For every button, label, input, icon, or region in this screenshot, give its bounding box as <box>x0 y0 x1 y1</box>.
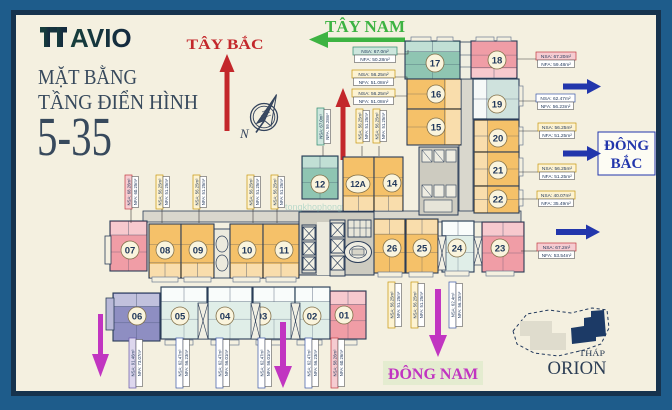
svg-text:NFA: 56.23m²: NFA: 56.23m² <box>184 349 189 376</box>
svg-text:NSA: 56.25m²: NSA: 56.25m² <box>357 112 362 140</box>
svg-text:NFA: 60.26m²: NFA: 60.26m² <box>339 349 344 376</box>
svg-text:12A: 12A <box>350 179 366 189</box>
svg-text:NSA: 67.0m²: NSA: 67.0m² <box>318 114 323 139</box>
svg-text:NFA: 51.25m²: NFA: 51.25m² <box>201 178 206 205</box>
svg-text:NSA: 56.25m²: NSA: 56.25m² <box>374 112 379 140</box>
svg-text:NFA: 56.23m²: NFA: 56.23m² <box>313 349 318 376</box>
svg-text:NFA: 51.25m²: NFA: 51.25m² <box>419 291 424 318</box>
svg-text:NFA: 51.25m²: NFA: 51.25m² <box>364 112 369 139</box>
svg-text:25: 25 <box>417 243 428 254</box>
svg-text:22: 22 <box>493 194 504 205</box>
svg-text:24: 24 <box>452 243 463 254</box>
svg-text:NSA: 91.46m²: NSA: 91.46m² <box>130 349 135 377</box>
svg-text:NSA: 67.2m²: NSA: 67.2m² <box>543 245 571 251</box>
svg-text:NSA: 56.25m²: NSA: 56.25m² <box>389 291 394 319</box>
svg-text:BẮC: BẮC <box>611 155 643 172</box>
svg-text:NFA: 51.25m²: NFA: 51.25m² <box>279 178 284 205</box>
svg-text:16: 16 <box>431 89 442 100</box>
svg-text:ORION: ORION <box>548 358 607 379</box>
svg-text:NSA: 56.25m²: NSA: 56.25m² <box>542 166 573 172</box>
svg-text:NFA: 51.25m²: NFA: 51.25m² <box>381 112 386 139</box>
svg-text:NFA: 51.08m²: NFA: 51.08m² <box>359 80 389 86</box>
svg-text:07: 07 <box>125 245 136 256</box>
svg-text:06: 06 <box>132 311 143 322</box>
svg-text:12: 12 <box>315 179 326 190</box>
svg-text:26: 26 <box>387 243 398 254</box>
svg-text:NSA: 67.20m²: NSA: 67.20m² <box>541 54 572 60</box>
svg-text:NSA: 62.47m²: NSA: 62.47m² <box>306 349 311 377</box>
svg-text:NSA: 56.25m²: NSA: 56.25m² <box>194 178 199 206</box>
svg-text:NSA: 62.4m²: NSA: 62.4m² <box>450 292 455 317</box>
svg-text:TÂY BẮC: TÂY BẮC <box>187 36 264 53</box>
svg-text:08: 08 <box>160 245 171 256</box>
svg-text:NSA: 62.47m²: NSA: 62.47m² <box>540 96 571 102</box>
svg-text:20: 20 <box>493 133 504 144</box>
svg-text:21: 21 <box>493 165 504 176</box>
svg-text:NFA: 73.07m²: NFA: 73.07m² <box>137 349 142 376</box>
svg-text:NFA: 50.28m²: NFA: 50.28m² <box>360 57 390 63</box>
svg-text:NFA: 51.25m²: NFA: 51.25m² <box>542 133 572 139</box>
svg-text:NFA: 56.01m²: NFA: 56.01m² <box>266 349 271 376</box>
svg-text:NSA: 56.25m²: NSA: 56.25m² <box>358 91 389 97</box>
svg-text:NFA: 35.49m²: NFA: 35.49m² <box>541 201 571 207</box>
svg-text:NSA: 62.47m²: NSA: 62.47m² <box>259 349 264 377</box>
svg-text:NFA: 56.01m²: NFA: 56.01m² <box>224 349 229 376</box>
svg-text:10: 10 <box>242 245 253 256</box>
svg-text:AVIO: AVIO <box>70 23 132 53</box>
svg-text:NSA: 56.25m²: NSA: 56.25m² <box>358 72 389 78</box>
svg-text:NSA: 56.25m²: NSA: 56.25m² <box>412 291 417 319</box>
svg-text:NFA: 56.23m²: NFA: 56.23m² <box>541 104 571 110</box>
svg-text:NFA: 60.25m²: NFA: 60.25m² <box>133 178 138 205</box>
svg-text:N: N <box>239 126 250 141</box>
svg-text:18: 18 <box>492 55 503 66</box>
svg-text:02: 02 <box>307 311 318 322</box>
svg-text:ĐÔNG: ĐÔNG <box>604 137 649 154</box>
svg-text:NSA: 68.26m²: NSA: 68.26m² <box>126 178 131 206</box>
svg-text:NFA: 51.25m²: NFA: 51.25m² <box>255 178 260 205</box>
svg-text:01: 01 <box>339 310 350 321</box>
svg-text:05: 05 <box>175 311 186 322</box>
svg-text:NSA: 40.07m²: NSA: 40.07m² <box>541 193 572 199</box>
svg-text:NFA: 51.25m²: NFA: 51.25m² <box>164 178 169 205</box>
svg-text:23: 23 <box>495 243 506 254</box>
svg-text:ĐÔNG NAM: ĐÔNG NAM <box>388 364 478 383</box>
svg-text:04: 04 <box>220 311 231 322</box>
svg-text:NSA: 62.47m²: NSA: 62.47m² <box>217 349 222 377</box>
svg-text:NSA: 56.25m²: NSA: 56.25m² <box>272 178 277 206</box>
svg-text:NSA: 62.47m²: NSA: 62.47m² <box>177 349 182 377</box>
svg-text:NFA: 51.25m²: NFA: 51.25m² <box>396 291 401 318</box>
svg-text:15: 15 <box>431 122 442 133</box>
svg-text:NFA: 51.08m²: NFA: 51.08m² <box>359 99 389 105</box>
svg-text:MẶT BẰNG: MẶT BẰNG <box>38 65 137 89</box>
svg-text:5-35: 5-35 <box>37 106 112 167</box>
svg-text:09: 09 <box>193 245 204 256</box>
svg-text:NFA: 59.28m²: NFA: 59.28m² <box>325 113 330 140</box>
svg-text:NSA: 56.25m²: NSA: 56.25m² <box>542 125 573 131</box>
svg-text:TÂY NAM: TÂY NAM <box>325 17 405 36</box>
svg-text:NFA: 53.54m²: NFA: 53.54m² <box>542 253 572 259</box>
svg-text:THÁP: THÁP <box>579 348 605 358</box>
svg-text:17: 17 <box>430 58 441 69</box>
svg-text:14: 14 <box>387 178 398 189</box>
svg-text:NFA: 51.25m²: NFA: 51.25m² <box>542 174 572 180</box>
svg-text:NFA: 56.33m²: NFA: 56.33m² <box>457 291 462 318</box>
svg-text:NSA: 56.25m²: NSA: 56.25m² <box>248 178 253 206</box>
svg-text:NSA: 56.25m²: NSA: 56.25m² <box>157 178 162 206</box>
svg-text:NSA: 67.0m²: NSA: 67.0m² <box>361 49 389 55</box>
svg-text:NFA: 59.48m²: NFA: 59.48m² <box>541 62 571 68</box>
svg-text:NSA: 58.26m²: NSA: 58.26m² <box>332 349 337 377</box>
svg-text:11: 11 <box>279 245 290 256</box>
svg-text:19: 19 <box>492 99 503 110</box>
